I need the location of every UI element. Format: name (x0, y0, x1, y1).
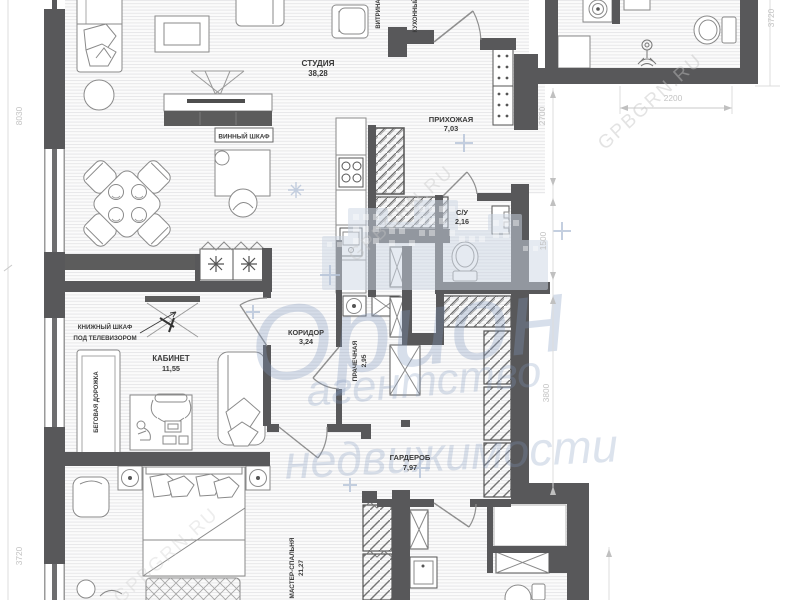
svg-text:С/У: С/У (456, 208, 468, 217)
svg-text:ПОД ТЕЛЕВИЗОРОМ: ПОД ТЕЛЕВИЗОРОМ (73, 335, 136, 342)
svg-text:2,95: 2,95 (361, 354, 368, 367)
svg-text:ГАРДЕРОБ: ГАРДЕРОБ (390, 453, 431, 462)
svg-text:КНИЖНЫЙ ШКАФ: КНИЖНЫЙ ШКАФ (78, 323, 133, 331)
svg-text:3,24: 3,24 (299, 337, 313, 346)
svg-text:КУХОННЫЙ: КУХОННЫЙ (411, 0, 419, 32)
svg-text:2200: 2200 (664, 93, 683, 103)
svg-text:КОРИДОР: КОРИДОР (288, 328, 324, 337)
svg-text:7,97: 7,97 (403, 463, 417, 472)
svg-text:БЕГОВАЯ ДОРОЖКА: БЕГОВАЯ ДОРОЖКА (94, 371, 100, 433)
svg-text:ВИННЫЙ ШКАФ: ВИННЫЙ ШКАФ (218, 132, 270, 141)
svg-text:3800: 3800 (541, 383, 551, 402)
svg-text:38,28: 38,28 (308, 69, 328, 78)
svg-text:7,03: 7,03 (444, 124, 458, 133)
svg-text:11,55: 11,55 (162, 364, 180, 373)
svg-text:ВИТРИНА: ВИТРИНА (376, 0, 382, 29)
svg-text:3720: 3720 (14, 546, 24, 565)
svg-text:3720: 3720 (766, 8, 776, 27)
svg-text:1500: 1500 (538, 231, 548, 250)
svg-text:СТУДИЯ: СТУДИЯ (302, 59, 335, 68)
svg-text:МАСТЕР-СПАЛЬНЯ: МАСТЕР-СПАЛЬНЯ (289, 537, 296, 598)
svg-text:ПРАЧЕЧНАЯ: ПРАЧЕЧНАЯ (352, 340, 359, 381)
svg-text:2700: 2700 (537, 106, 547, 125)
svg-text:КАБИНЕТ: КАБИНЕТ (152, 354, 189, 363)
svg-text:21,27: 21,27 (298, 560, 305, 576)
svg-text:ПРИХОЖАЯ: ПРИХОЖАЯ (429, 115, 473, 124)
svg-text:2,16: 2,16 (455, 217, 469, 226)
svg-text:8030: 8030 (14, 106, 24, 125)
